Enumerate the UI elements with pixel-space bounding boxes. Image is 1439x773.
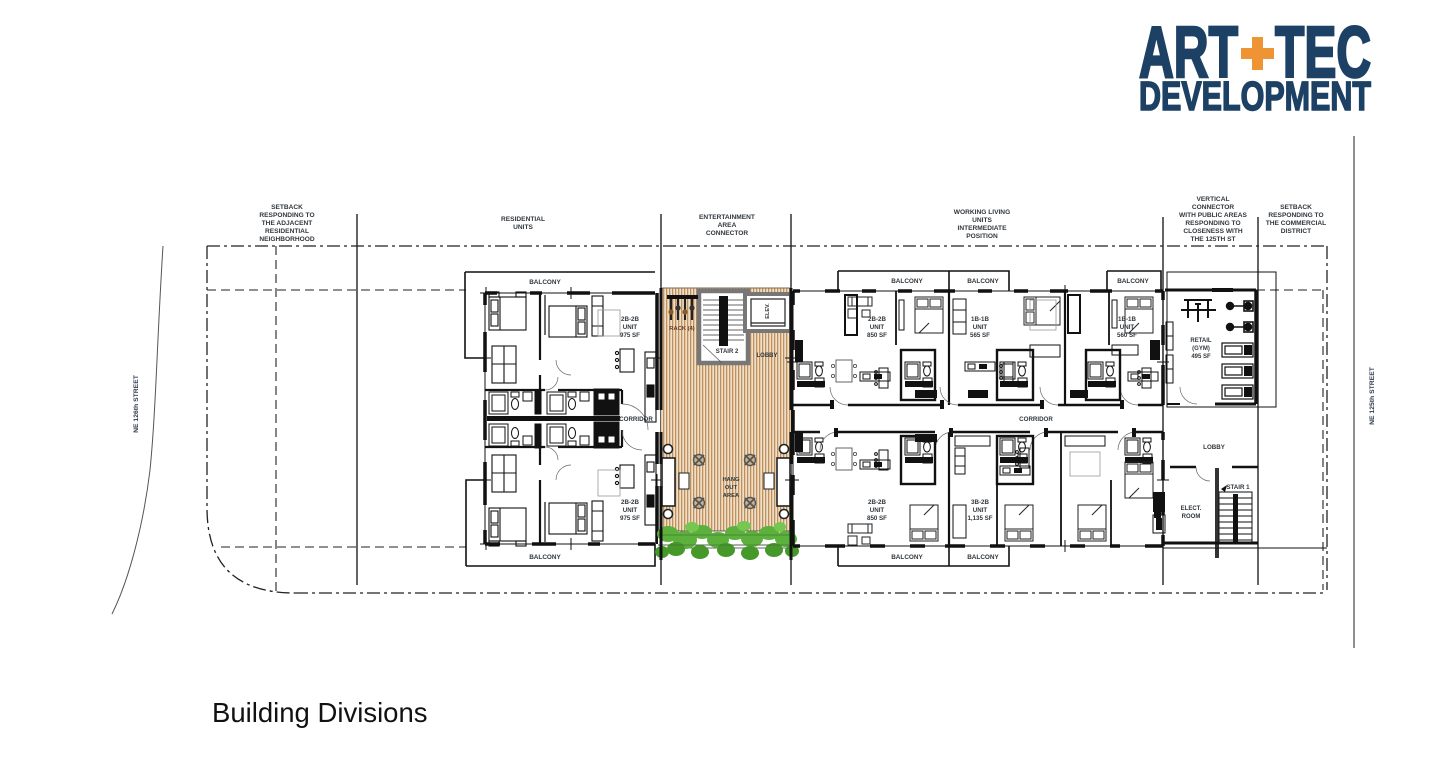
svg-text:ELECT.: ELECT. [1181, 506, 1202, 512]
svg-text:CORRIDOR: CORRIDOR [1019, 416, 1053, 423]
svg-text:ENTERTAINMENT: ENTERTAINMENT [699, 214, 755, 221]
svg-text:WORKING LIVING: WORKING LIVING [954, 209, 1010, 216]
svg-text:OUT: OUT [725, 485, 738, 491]
svg-text:NEIGHBORHOOD: NEIGHBORHOOD [259, 236, 315, 243]
svg-text:1B-1B: 1B-1B [1118, 316, 1136, 323]
svg-text:BALCONY: BALCONY [529, 554, 561, 561]
svg-text:STAIR 1: STAIR 1 [1226, 484, 1250, 491]
svg-text:UNIT: UNIT [870, 507, 885, 514]
svg-text:RESIDENTIAL: RESIDENTIAL [265, 228, 309, 235]
svg-text:NE 126th STREET: NE 126th STREET [133, 374, 140, 433]
svg-text:LOBBY: LOBBY [757, 353, 778, 359]
svg-text:RESPONDING TO: RESPONDING TO [1268, 212, 1323, 219]
svg-text:850 SF: 850 SF [867, 515, 887, 522]
svg-text:AREA: AREA [723, 493, 740, 499]
svg-text:ELEV.: ELEV. [765, 303, 771, 319]
svg-text:BALCONY: BALCONY [967, 554, 999, 561]
svg-text:INTERMEDIATE: INTERMEDIATE [958, 225, 1008, 232]
svg-text:LOBBY: LOBBY [1203, 444, 1226, 451]
svg-text:RESPONDING TO: RESPONDING TO [1185, 220, 1240, 227]
svg-text:ROOM: ROOM [1182, 514, 1201, 520]
svg-text:CONNECTOR: CONNECTOR [1192, 204, 1235, 211]
svg-text:STAIR 2: STAIR 2 [716, 349, 739, 355]
svg-text:UNIT: UNIT [973, 507, 988, 514]
svg-text:495 SF: 495 SF [1191, 354, 1211, 360]
svg-text:BALCONY: BALCONY [891, 278, 923, 285]
svg-text:THE ADJACENT: THE ADJACENT [262, 220, 313, 227]
svg-text:RETAIL: RETAIL [1190, 338, 1212, 344]
svg-text:POSITION: POSITION [966, 233, 998, 240]
svg-text:2B-2B: 2B-2B [868, 316, 886, 323]
svg-text:BALCONY: BALCONY [1117, 278, 1149, 285]
svg-text:BALCONY: BALCONY [529, 279, 561, 286]
svg-text:DISTRICT: DISTRICT [1281, 228, 1311, 235]
svg-text:RESIDENTIAL: RESIDENTIAL [501, 216, 545, 223]
svg-text:BALCONY: BALCONY [967, 278, 999, 285]
svg-text:THE COMMERCIAL: THE COMMERCIAL [1266, 220, 1326, 227]
svg-text:2B-2B: 2B-2B [868, 499, 886, 506]
svg-text:1B-1B: 1B-1B [971, 316, 989, 323]
svg-text:HANG: HANG [722, 477, 740, 483]
svg-text:UNIT: UNIT [973, 324, 988, 331]
svg-text:CONNECTOR: CONNECTOR [706, 230, 749, 237]
svg-text:(GYM): (GYM) [1192, 346, 1210, 352]
svg-text:RACK (4): RACK (4) [669, 326, 695, 332]
svg-text:975 SF: 975 SF [620, 515, 640, 522]
svg-text:2B-2B: 2B-2B [621, 499, 639, 506]
svg-text:CLOSENESS WITH: CLOSENESS WITH [1183, 228, 1243, 235]
svg-text:UNIT: UNIT [870, 324, 885, 331]
svg-text:2B-2B: 2B-2B [621, 316, 639, 323]
svg-text:AREA: AREA [718, 222, 737, 229]
svg-text:UNITS: UNITS [972, 217, 992, 224]
svg-text:NE 125th STREET: NE 125th STREET [1369, 366, 1376, 425]
svg-text:975 SF: 975 SF [620, 332, 640, 339]
svg-text:Building Divisions: Building Divisions [212, 697, 428, 728]
svg-text:SETBACK: SETBACK [1280, 204, 1312, 211]
svg-text:UNIT: UNIT [623, 507, 638, 514]
svg-text:DEVELOPMENT: DEVELOPMENT [1139, 73, 1371, 119]
svg-text:850 SF: 850 SF [867, 332, 887, 339]
svg-text:UNITS: UNITS [513, 224, 533, 231]
svg-text:WITH PUBLIC AREAS: WITH PUBLIC AREAS [1179, 212, 1247, 219]
svg-text:565 SF: 565 SF [970, 332, 990, 339]
svg-text:UNIT: UNIT [623, 324, 638, 331]
svg-text:SETBACK: SETBACK [271, 204, 303, 211]
svg-text:VERTICAL: VERTICAL [1197, 196, 1230, 203]
svg-text:1,135 SF: 1,135 SF [967, 515, 992, 522]
svg-text:BALCONY: BALCONY [891, 554, 923, 561]
svg-text:RESPONDING TO: RESPONDING TO [259, 212, 314, 219]
svg-text:THE 125TH ST: THE 125TH ST [1190, 236, 1235, 243]
svg-text:3B-2B: 3B-2B [971, 499, 989, 506]
